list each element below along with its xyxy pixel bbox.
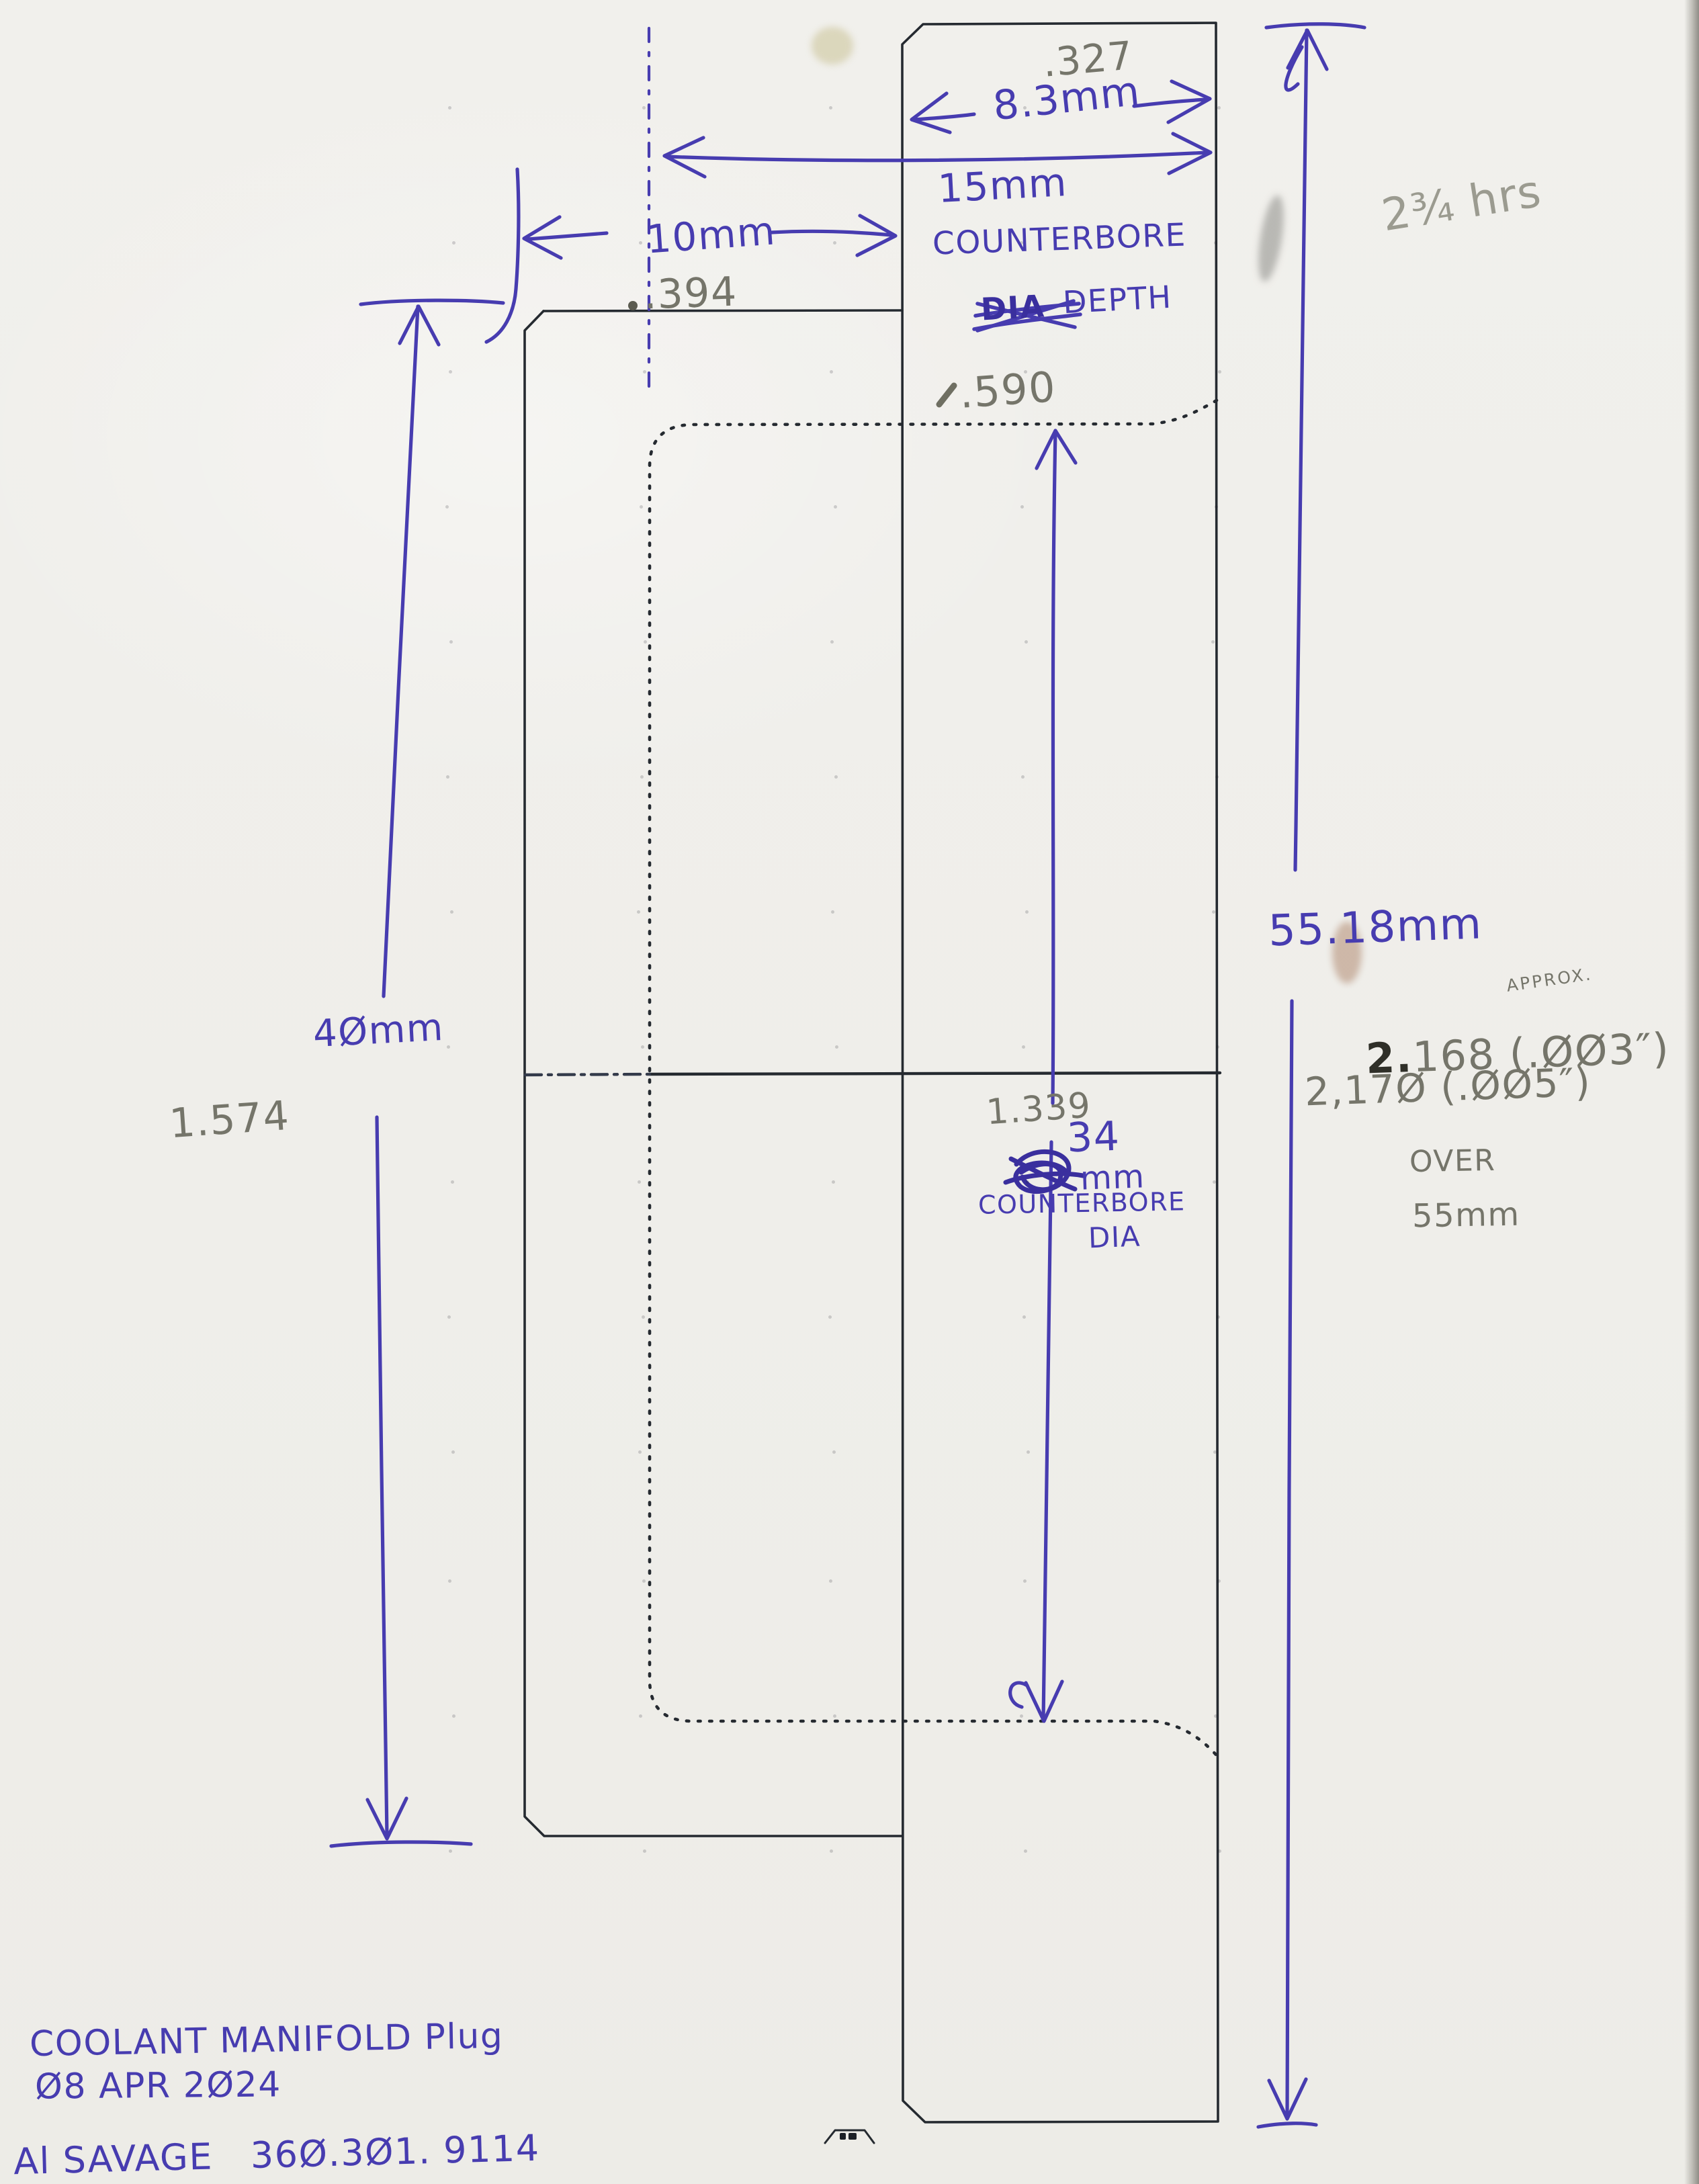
bleed-dot [1212,910,1215,914]
bleed-dot [1021,775,1025,779]
bleed-dot [1025,640,1028,644]
bleed-dot [1218,1849,1221,1853]
bleed-dot [1020,1714,1023,1718]
bleed-dot [642,106,646,110]
footer-mark-glyph [848,2133,857,2140]
title-date: Ø8 APR 2Ø24 [35,2066,281,2105]
bleed-dot [446,775,449,779]
bleed-dot [1023,1579,1027,1583]
bleed-dot [445,505,449,509]
bleed-dot [1214,1714,1217,1718]
dim-10-extension-line [486,169,519,342]
bleed-dot [448,1579,451,1583]
bleed-dot [642,1579,646,1583]
bleed-dot [829,1579,832,1583]
bleed-dot [1216,1045,1219,1049]
dim-10-arrow-right [771,216,896,255]
bleed-dot [828,1315,832,1319]
bleed-dot [643,370,646,374]
bleed-dot [1025,910,1029,914]
bleed-dot [637,910,640,914]
mid-split-line-dashed [525,1074,650,1075]
bleed-dot [639,241,642,245]
bleed-dot [1022,1315,1026,1319]
bleed-dot [1211,640,1215,644]
cbore-struck-dia-label: DIA [980,290,1046,326]
bleed-dot [835,1045,838,1049]
dim-40-shaft-upper [384,306,418,996]
bleed-dot [1218,370,1221,374]
bleed-dot [638,1180,641,1184]
dim-40-extension-top [361,300,503,304]
dim-40-shaft-lower [377,1117,387,1836]
bleed-dot [1217,1315,1220,1319]
dim-55-extension-top [1266,24,1364,28]
bleed-dot [832,1180,835,1184]
bleed-dot [643,1849,646,1853]
dim-83-arrow-left [912,93,974,132]
body-length-mm-label: 4Ømm [312,1008,445,1055]
bleed-dot [829,106,832,110]
cbore-dia-word2-label: DIA [1088,1222,1141,1254]
cbore-depth-inches-label: .590 [958,365,1057,415]
bleed-dot [1027,1450,1030,1454]
bleed-dot [1213,1450,1217,1454]
bleed-dot [831,910,834,914]
bleed-dot [638,1450,642,1454]
bleed-dot [830,640,834,644]
dim-15-line [666,152,1207,161]
cbore-depth-word1-label: COUNTERBORE [932,218,1186,260]
overall-over-word: OVER [1409,1145,1496,1178]
bleed-dot [833,1714,836,1718]
pencil-smudge [812,27,853,64]
dim-55-shaft-upper [1295,30,1307,870]
bleed-dot [834,505,837,509]
bleed-dot [642,1315,645,1319]
bleed-dot [449,640,453,644]
bleed-dot [451,1180,454,1184]
cbore-dia-mm-label: 34 [1066,1116,1121,1160]
overall-mm-label: 55.18mm [1268,902,1483,954]
bleed-dot [448,106,451,110]
bleed-dot [452,241,455,245]
dim-10-arrow-left [524,217,607,258]
bleed-dot [1213,1180,1216,1184]
body-length-inches-label: 1.574 [168,1095,291,1145]
bleed-dot [449,1849,452,1853]
bleed-dot [451,1450,455,1454]
bleed-dot [1022,1045,1025,1049]
bleed-dot [834,775,838,779]
cbore-depth-word2-label: DEPTH [1062,281,1173,319]
bleed-dot [447,1315,451,1319]
bleed-dot [1215,505,1218,509]
dim-55-extension-bottom [1258,2124,1316,2127]
bleed-dot [833,241,836,245]
overall-over-value: 55mm [1412,1198,1520,1233]
dim-83-arrow-right [1134,81,1210,122]
dim-40-extension-bottom [331,1842,471,1846]
bleed-dot [644,640,647,644]
mid-split-line [650,1073,1220,1074]
bleed-dot [641,1045,644,1049]
bleed-dot [1020,505,1024,509]
bleed-dot [452,1714,455,1718]
cbore-dia-word1-label: COUNTERBORE [978,1188,1186,1219]
bleed-dot [639,1714,642,1718]
bleed-dot [830,370,833,374]
pencil-dot [628,301,638,310]
dim-cb-shaft-lower [1043,1142,1051,1720]
scanned-sketch-page: .327 8.3mm 15mm COUNTERBORE DIA DEPTH .5… [0,0,1699,2184]
bleed-dot [1215,775,1219,779]
bleed-dot [1217,1579,1221,1583]
cbore-depth-mm-label: 15mm [937,162,1069,210]
bleed-dot [447,1045,450,1049]
bleed-dot [450,910,453,914]
footer-mark-glyph [840,2133,846,2140]
scan-edge-shadow [1684,0,1699,2184]
bleed-dot [1217,106,1221,110]
offset-inches-label: .394 [643,271,738,317]
bleed-dot [1024,1849,1027,1853]
bleed-dot [830,1849,833,1853]
pencil-tick [939,386,954,404]
bleed-dot [449,370,452,374]
counterbore-dotted-outline [650,400,1217,1755]
bleed-dot [640,505,643,509]
dim-cb-shaft-upper [1053,431,1055,1103]
dim-55-shaft-lower [1287,1001,1292,2116]
bleed-dot [832,1450,836,1454]
overall-reading2: 2,17Ø (.ØØ5″) [1304,1062,1592,1113]
bleed-dot [640,775,644,779]
dim-cb-arrow-loop [1010,1683,1027,1707]
bleed-dot [1026,1180,1029,1184]
offset-mm-label: 10mm [645,210,777,260]
bleed-dot [1214,241,1217,245]
title-part-name: COOLANT MANIFOLD Plug [30,2018,504,2063]
